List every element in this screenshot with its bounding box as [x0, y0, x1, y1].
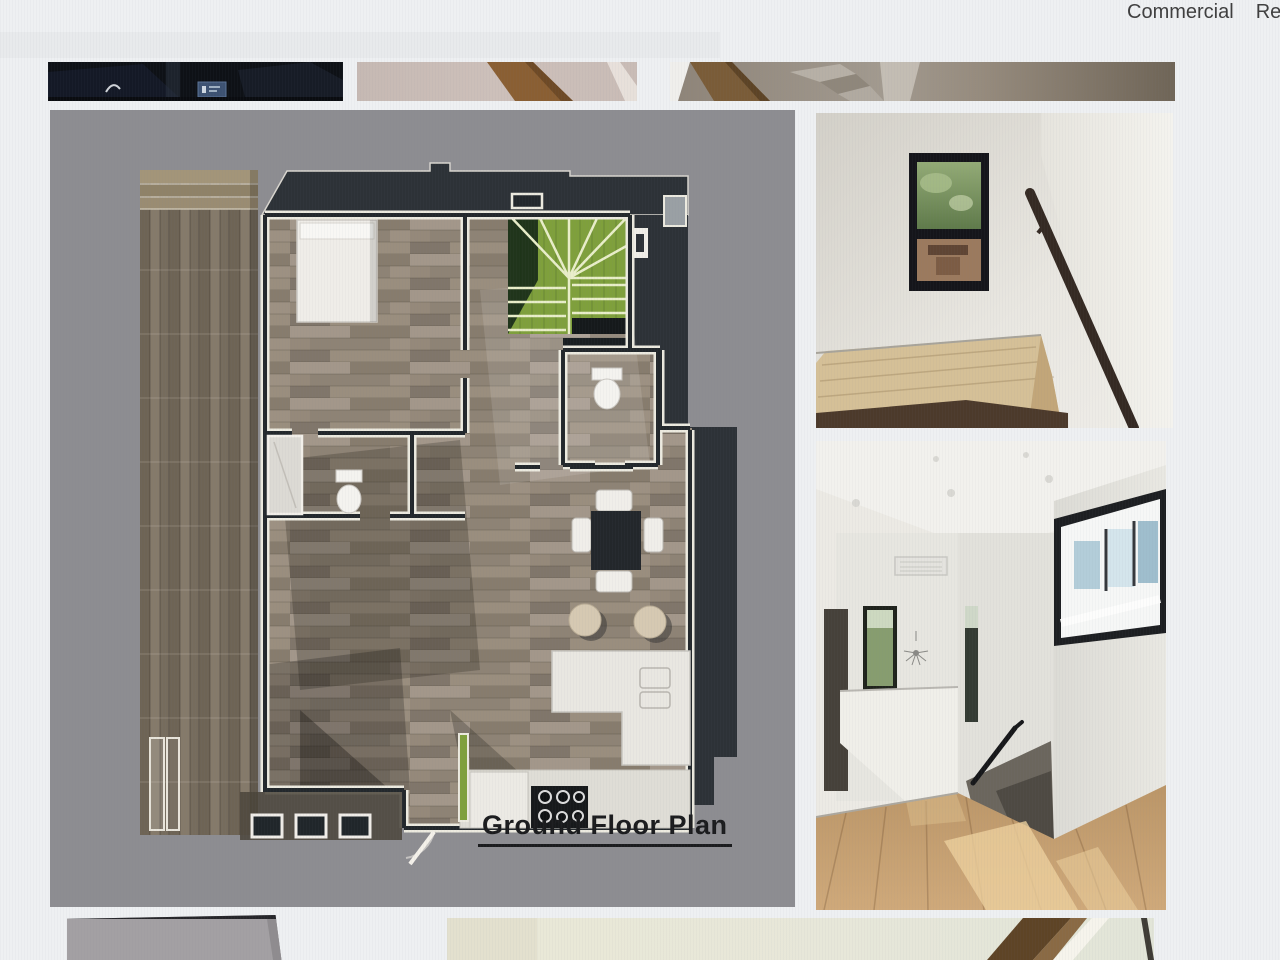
header-shadow-band	[0, 32, 720, 58]
thumbnail-beige-wall-graphic	[357, 62, 637, 101]
floor-plan-tile[interactable]: Ground Floor Plan	[50, 110, 795, 907]
toilet-room	[592, 368, 622, 409]
deck-strip	[140, 170, 258, 835]
chimney	[512, 194, 542, 208]
thumbnail-dark-interior-graphic	[48, 62, 343, 101]
window	[909, 153, 989, 291]
landing-floor	[816, 335, 1068, 428]
floor-plan-graphic	[50, 110, 795, 907]
pouf	[569, 604, 601, 636]
green-accent-wall	[459, 734, 468, 821]
exterior-steps	[240, 792, 402, 840]
wall-window	[664, 196, 686, 226]
toilet-bowl	[337, 485, 361, 513]
dining-table	[591, 511, 641, 570]
thumbnail-staircase-graphic	[670, 62, 1175, 101]
porch-step	[167, 738, 179, 830]
bed	[297, 220, 377, 322]
pouf	[634, 606, 666, 638]
thumbnail-beige-wall[interactable]	[357, 62, 637, 101]
bottom-partial-left-graphic	[67, 919, 282, 960]
toilet-tank	[336, 470, 362, 482]
top-nav: Commercial Res	[1127, 1, 1280, 23]
photo-upstairs-hallway[interactable]	[816, 441, 1166, 910]
real-estate-gallery-page: Commercial Res	[0, 0, 1280, 960]
nav-item-residential[interactable]: Res	[1256, 1, 1280, 23]
thumbnail-dark-interior[interactable]	[48, 62, 343, 101]
plan-caption: Ground Floor Plan	[478, 810, 732, 847]
bottom-partial-right[interactable]	[447, 918, 1154, 960]
photo-upstairs-hallway-graphic	[816, 441, 1166, 910]
photo-stair-landing[interactable]	[816, 113, 1173, 428]
porch-step	[150, 738, 164, 830]
tall-window	[863, 606, 897, 690]
bottom-partial-left[interactable]	[67, 915, 282, 960]
nav-item-commercial[interactable]: Commercial	[1127, 1, 1234, 23]
thumbnail-staircase[interactable]	[670, 62, 1175, 101]
bottom-partial-right-graphic	[447, 918, 1154, 960]
photo-stair-landing-graphic	[816, 113, 1173, 428]
